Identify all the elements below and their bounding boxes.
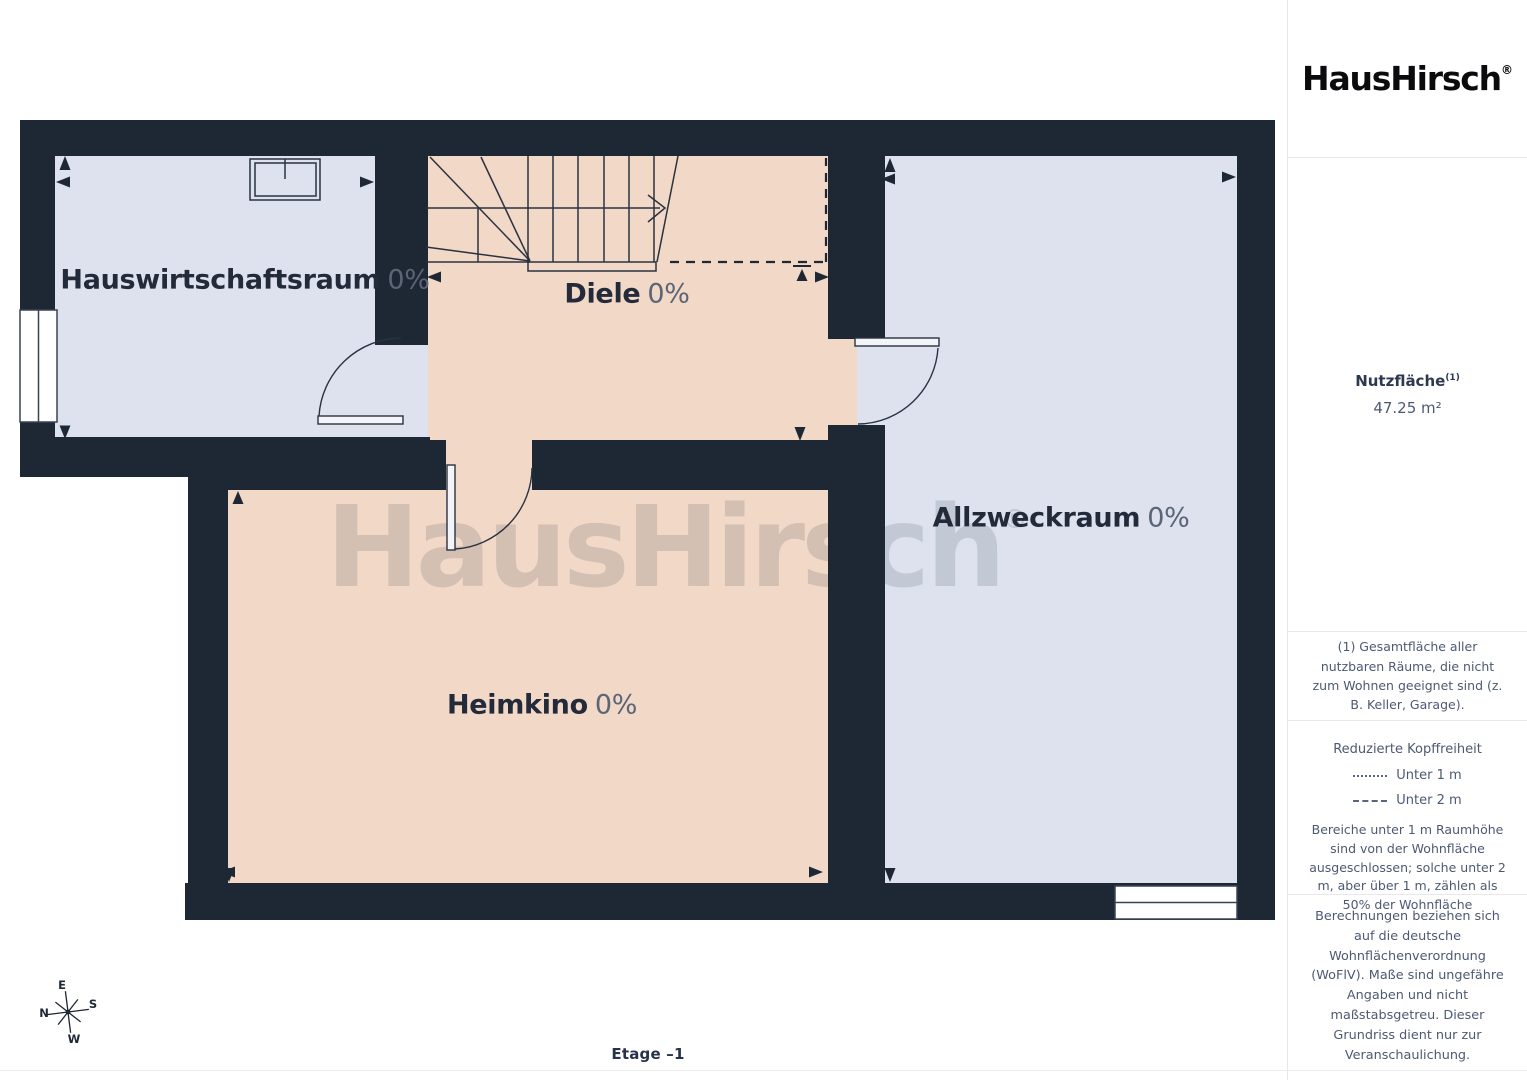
footnote-marker: (1) bbox=[1445, 373, 1460, 383]
room-label-allzweckraum: Allzweckraum0% bbox=[933, 503, 1190, 534]
brand-logo: HausHirsch® bbox=[1288, 0, 1527, 158]
compass-n: N bbox=[39, 1006, 49, 1020]
area-label-text: Nutzfläche bbox=[1355, 372, 1445, 390]
room-name: Allzweckraum bbox=[933, 503, 1141, 534]
room-percent: 0% bbox=[647, 279, 689, 310]
dotted-line-icon bbox=[1353, 775, 1387, 777]
page-bottom-divider bbox=[0, 1070, 1527, 1071]
headroom-2m-dashed-boundary bbox=[670, 158, 826, 262]
registered-mark: ® bbox=[1501, 63, 1513, 77]
legend-label: Unter 1 m bbox=[1396, 768, 1461, 783]
compass-e: E bbox=[58, 978, 66, 992]
compass-w: W bbox=[68, 1032, 81, 1046]
area-section: Nutzfläche(1) 47.25 m² bbox=[1288, 158, 1527, 632]
window-icon-left-wall bbox=[20, 310, 57, 422]
stairs bbox=[426, 156, 678, 271]
floor-plan: HausHirsch® bbox=[0, 0, 1287, 1080]
headroom-title: Reduzierte Kopffreiheit bbox=[1333, 742, 1482, 757]
room-label-diele: Diele0% bbox=[564, 279, 689, 310]
legend-label: Unter 2 m bbox=[1396, 793, 1461, 808]
room-label-hauswirtschaftsraum: Hauswirtschaftsraum0% bbox=[60, 265, 429, 296]
door-arcs bbox=[318, 338, 939, 550]
room-percent: 0% bbox=[595, 690, 637, 721]
dashed-line-icon bbox=[1353, 800, 1387, 802]
room-name: Hauswirtschaftsraum bbox=[60, 265, 380, 296]
disclaimer-text: Berechnungen beziehen sich auf die deuts… bbox=[1288, 907, 1527, 1066]
plan-linework: E S N W bbox=[0, 0, 1287, 1080]
area-value: 47.25 m² bbox=[1373, 399, 1441, 417]
disclaimer-section: Berechnungen beziehen sich auf die deuts… bbox=[1288, 895, 1527, 1080]
compass-icon: E S N W bbox=[39, 978, 97, 1046]
legend-row-under-2m: Unter 2 m bbox=[1353, 793, 1461, 808]
room-name: Diele bbox=[564, 279, 640, 310]
room-name: Heimkino bbox=[447, 690, 588, 721]
floorplan-page: HausHirsch® bbox=[0, 0, 1527, 1080]
floor-label: Etage –1 bbox=[611, 1045, 684, 1063]
legend-row-under-1m: Unter 1 m bbox=[1353, 768, 1461, 783]
window-icon-bottom-wall bbox=[1115, 886, 1237, 919]
area-label: Nutzfläche(1) bbox=[1355, 372, 1460, 390]
sidebar: HausHirsch® Nutzfläche(1) 47.25 m² (1) G… bbox=[1287, 0, 1527, 1080]
room-percent: 0% bbox=[387, 265, 429, 296]
room-percent: 0% bbox=[1147, 503, 1189, 534]
fixture-icon bbox=[250, 159, 320, 200]
headroom-note: Bereiche unter 1 m Raumhöhe sind von der… bbox=[1288, 821, 1527, 915]
room-label-heimkino: Heimkino0% bbox=[447, 690, 637, 721]
footnote-section: (1) Gesamtfläche aller nutzbaren Räume, … bbox=[1288, 632, 1527, 721]
logo-text: HausHirsch bbox=[1302, 59, 1501, 98]
headroom-legend-section: Reduzierte Kopffreiheit Unter 1 m Unter … bbox=[1288, 721, 1527, 895]
compass-s: S bbox=[89, 997, 97, 1011]
area-footnote-text: (1) Gesamtfläche aller nutzbaren Räume, … bbox=[1288, 637, 1527, 715]
